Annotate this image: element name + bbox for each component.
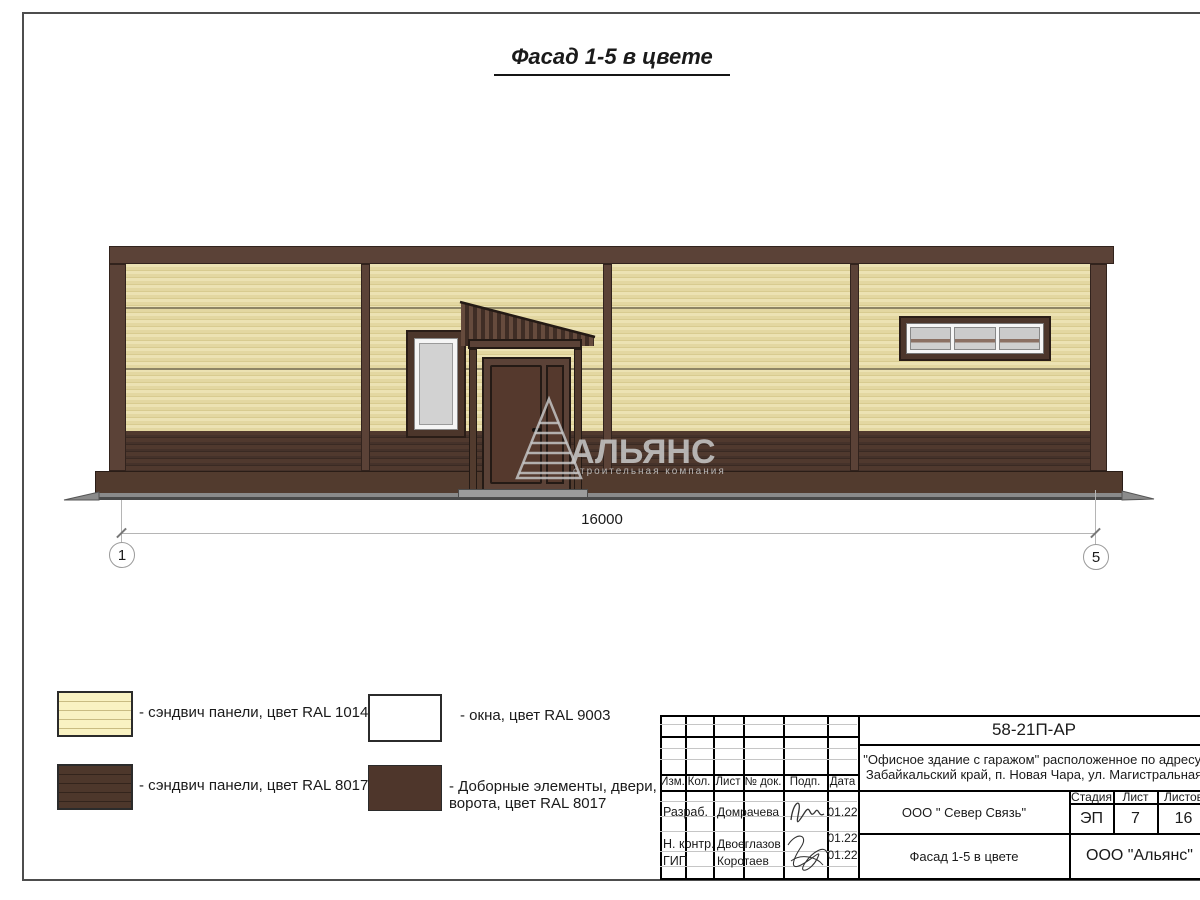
door-leaf [490, 365, 542, 484]
tb-line [713, 715, 715, 879]
tb-header-izm: Изм. [660, 774, 685, 790]
sig-date-1: 01.22 [827, 805, 858, 819]
legend-swatch-ral9003 [368, 694, 442, 742]
title-block: 58-21П-АР "Офисное здание с гаражом" рас… [660, 715, 1200, 880]
pilaster-1 [361, 264, 370, 471]
roof-band [109, 246, 1114, 264]
tb-subline [660, 724, 857, 725]
porch-post-left [469, 349, 477, 491]
axis-mark-5: 5 [1083, 544, 1109, 570]
tb-subline [660, 801, 857, 802]
legend-label-ral8017: - сэндвич панели, цвет RAL 8017 [139, 777, 368, 794]
ground-wedge-right [1122, 491, 1154, 500]
corner-column-right [1090, 264, 1107, 471]
contractor-name: ООО " Север Связь" [859, 791, 1069, 833]
tb-line [660, 736, 858, 738]
sig-name-1: Домрачева [717, 805, 779, 819]
tb-header-list: Лист [713, 774, 743, 790]
sheet-value: 7 [1114, 804, 1157, 833]
tb-header-data: Дата [827, 774, 858, 790]
facade-drawing: АЛЬЯНС строительная компания 16000 1 5 [0, 0, 1200, 600]
doc-number: 58-21П-АР [859, 717, 1200, 743]
tb-subline [660, 759, 857, 760]
watermark-tagline: строительная компания [573, 466, 726, 477]
project-description: "Офисное здание с гаражом" расположенное… [859, 744, 1200, 790]
legend-swatch-ral1014 [57, 691, 133, 737]
door-handle [532, 428, 541, 432]
sig-date-3: 01.22 [827, 848, 858, 862]
porch-canopy-fascia [468, 339, 582, 349]
stage-value: ЭП [1070, 804, 1113, 833]
ground-wedge-left [64, 492, 99, 500]
signature-2 [783, 827, 831, 879]
sig-role-2: Н. контр. [663, 837, 715, 851]
company-name: ООО "Альянс" [1070, 834, 1200, 878]
sheet-name: Фасад 1-5 в цвете [859, 834, 1069, 878]
legend-label-ral9003: - окна, цвет RAL 9003 [460, 707, 610, 724]
tb-header-podp: Подп. [783, 774, 827, 790]
tb-header-doc: № док. [743, 774, 783, 790]
sig-name-2: Двоеглазов [717, 837, 781, 851]
legend-label-doors-line2: ворота, цвет RAL 8017 [449, 796, 657, 813]
sig-role-1: Разраб. [663, 805, 708, 819]
tb-line [660, 715, 662, 879]
sig-role-3: ГИП [663, 854, 688, 868]
corner-column-left [109, 264, 126, 471]
extension-line-right [1095, 490, 1096, 547]
legend-swatch-ral8017 [57, 764, 133, 810]
legend-label-ral1014: - сэндвич панели, цвет RAL 1014 [139, 704, 368, 721]
sig-name-3: Коротаев [717, 854, 769, 868]
extension-line-left [121, 500, 122, 547]
window-right-pane-1 [910, 327, 951, 350]
project-line1: "Офисное здание с гаражом" расположенное… [863, 752, 1200, 768]
sheets-header: Листов [1158, 790, 1200, 803]
pilaster-3 [850, 264, 859, 471]
ground-line [95, 493, 1125, 500]
dimension-line [122, 533, 1096, 534]
door-side-panel [546, 365, 564, 484]
door-step [458, 489, 588, 498]
legend-label-doors-line1: - Доборные элементы, двери, [449, 779, 657, 796]
window-right-pane-3 [999, 327, 1040, 350]
sheet-header: Лист [1114, 790, 1157, 803]
tb-subline [660, 748, 857, 749]
legend-swatch-doors [368, 765, 442, 811]
window-left-glass [419, 343, 453, 425]
legend-label-doors: - Доборные элементы, двери, ворота, цвет… [449, 779, 657, 812]
project-line2: Забайкальский край, п. Новая Чара, ул. М… [866, 767, 1200, 783]
drawing-page: { "sheet": { "title": "Фасад 1-5 в цвете… [0, 0, 1200, 900]
stage-header: Стадия [1070, 790, 1113, 803]
tb-line [660, 878, 1200, 880]
window-right-frame [906, 323, 1044, 354]
dimension-label: 16000 [552, 511, 652, 528]
axis-mark-1: 1 [109, 542, 135, 568]
sig-date-2: 01.22 [827, 831, 858, 845]
window-right-pane-2 [954, 327, 995, 350]
tb-header-kol: Кол. [685, 774, 713, 790]
sheets-value: 16 [1158, 804, 1200, 833]
